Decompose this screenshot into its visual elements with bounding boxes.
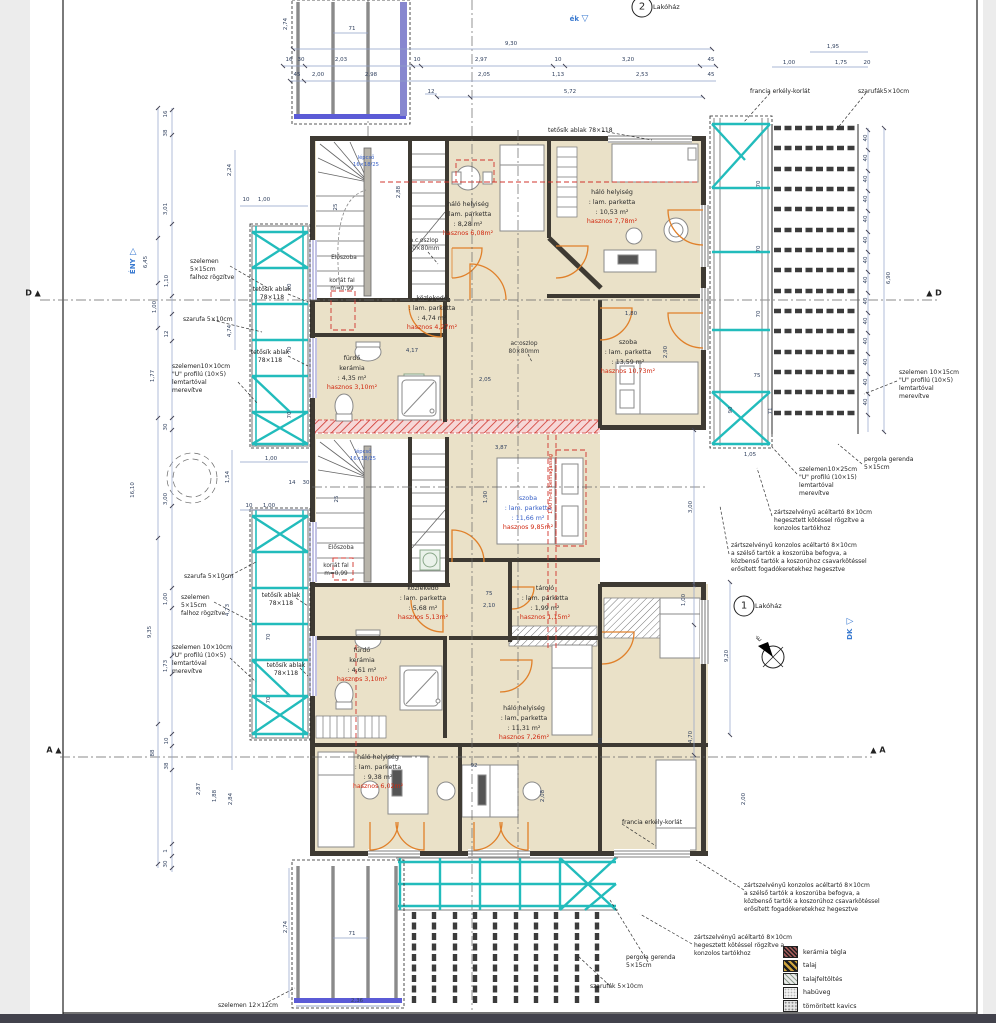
headroom-hatch-strip: [312, 420, 600, 433]
balcony-left-lower: [250, 508, 310, 740]
balcony-left-upper: [250, 224, 310, 448]
balcony-right: [710, 116, 772, 448]
floor-plan-page: 712,749,3016302,03102,97103,2045452,002,…: [0, 0, 996, 1023]
pergola-right: [772, 124, 858, 434]
bottom-bar: [0, 1014, 996, 1023]
compass-icon: [758, 642, 784, 668]
skylight-structure-top: [292, 0, 410, 124]
plan-drawing: [0, 0, 996, 1023]
skylight-structure-bottom: [292, 860, 404, 1008]
pergola-bottom: [396, 858, 618, 1004]
